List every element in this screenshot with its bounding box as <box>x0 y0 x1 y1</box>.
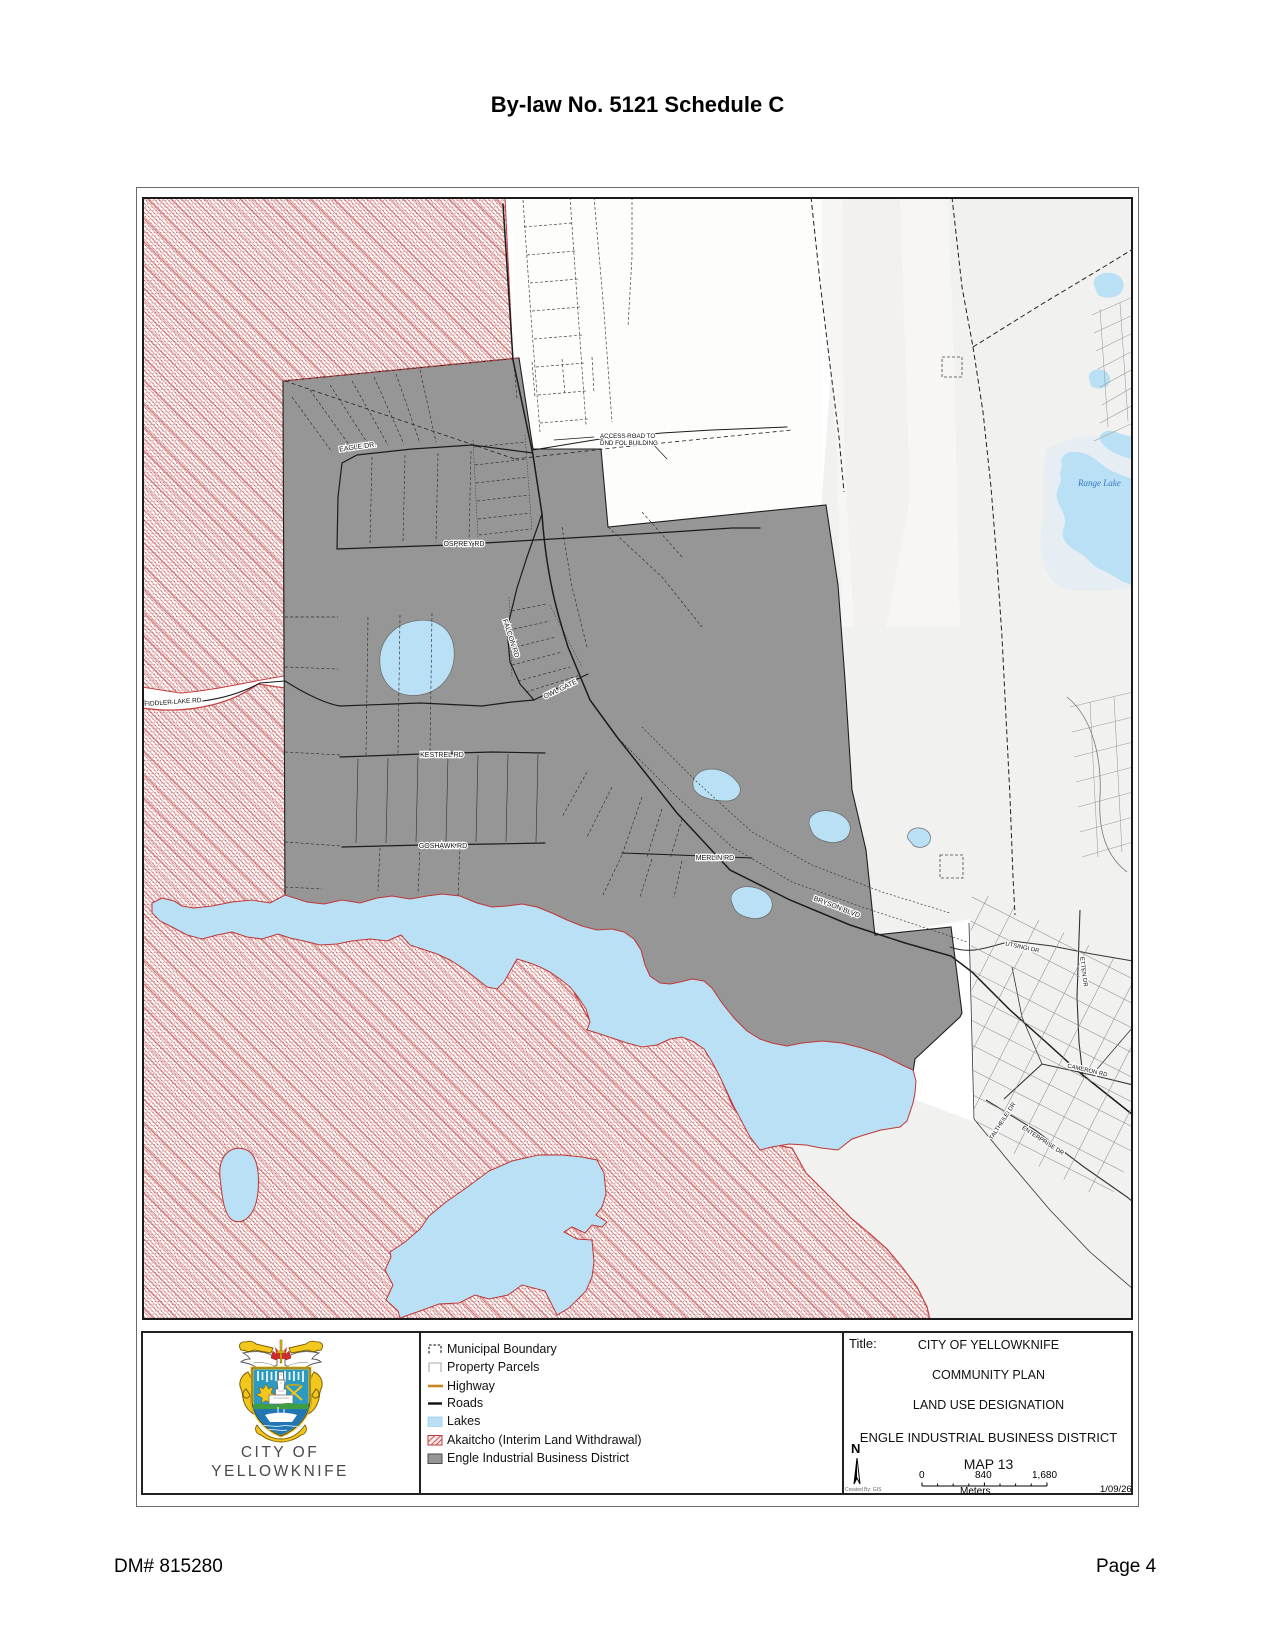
svg-text:KESTREL RD: KESTREL RD <box>420 752 464 759</box>
svg-text:Range Lake: Range Lake <box>1077 478 1121 488</box>
svg-text:MERLIN RD: MERLIN RD <box>696 855 735 862</box>
svg-text:DND FOL BUILDING: DND FOL BUILDING <box>600 440 658 447</box>
svg-text:OSPREY RD: OSPREY RD <box>443 541 484 548</box>
svg-text:ACCESS ROAD TO: ACCESS ROAD TO <box>600 433 655 440</box>
svg-text:GOSHAWK RD: GOSHAWK RD <box>419 843 467 850</box>
